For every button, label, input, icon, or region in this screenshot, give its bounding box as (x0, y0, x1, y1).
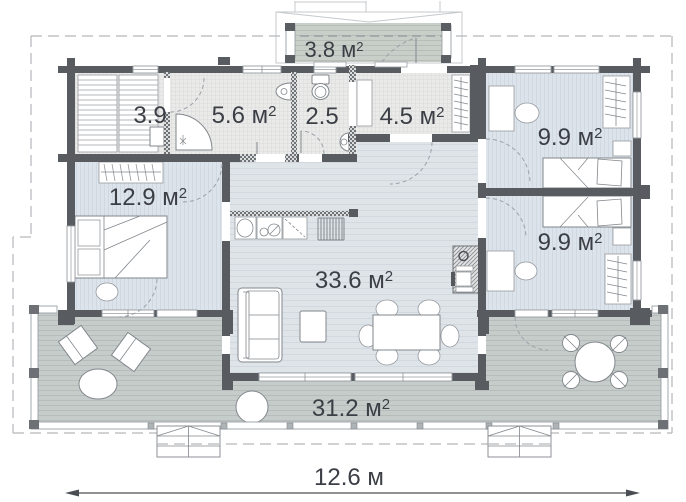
svg-text:3.8 м2: 3.8 м2 (304, 37, 363, 62)
svg-text:31.2 м2: 31.2 м2 (312, 395, 390, 422)
svg-text:5.6 м2: 5.6 м2 (212, 102, 277, 129)
svg-text:12.6 м: 12.6 м (314, 464, 384, 491)
svg-text:3.9: 3.9 (133, 102, 166, 129)
svg-text:9.9 м2: 9.9 м2 (538, 229, 603, 256)
svg-text:2.5: 2.5 (305, 103, 338, 130)
svg-text:12.9 м2: 12.9 м2 (109, 184, 187, 211)
svg-text:33.6 м2: 33.6 м2 (315, 267, 393, 294)
svg-text:9.9 м2: 9.9 м2 (538, 124, 603, 151)
svg-text:4.5 м2: 4.5 м2 (380, 103, 445, 130)
